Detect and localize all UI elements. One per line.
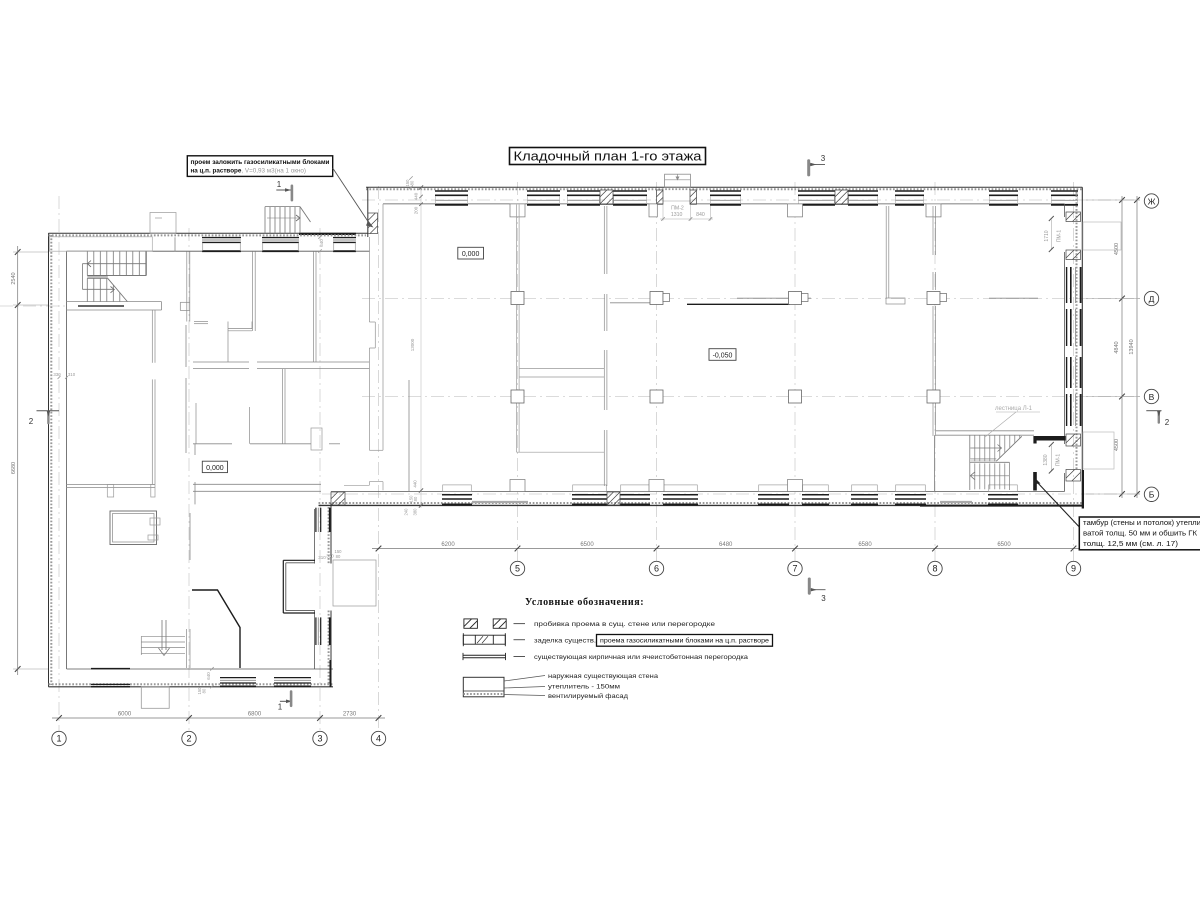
svg-text:440: 440 xyxy=(413,480,418,488)
svg-text:Ж: Ж xyxy=(1148,196,1156,206)
svg-text:2: 2 xyxy=(1165,418,1170,427)
svg-text:1: 1 xyxy=(56,734,61,744)
svg-text:проем заложить газосиликатными: проем заложить газосиликатными блоками xyxy=(191,158,330,166)
svg-text:13940: 13940 xyxy=(1129,339,1135,354)
svg-text:4500: 4500 xyxy=(1114,243,1120,255)
svg-text:1710: 1710 xyxy=(1044,230,1050,241)
svg-text:Б: Б xyxy=(1149,490,1155,500)
svg-text:4: 4 xyxy=(376,734,381,744)
svg-text:6680: 6680 xyxy=(11,462,17,474)
svg-text:330: 330 xyxy=(326,554,334,559)
svg-text:80: 80 xyxy=(413,496,418,501)
svg-text:310: 310 xyxy=(68,372,76,377)
svg-text:6480: 6480 xyxy=(719,542,733,548)
svg-text:ПМ-2: ПМ-2 xyxy=(671,206,684,212)
svg-text:3: 3 xyxy=(821,594,826,603)
svg-text:6200: 6200 xyxy=(441,542,455,548)
svg-text:вентилируемый фасад: вентилируемый фасад xyxy=(548,692,628,700)
svg-text:0,000: 0,000 xyxy=(206,465,224,472)
svg-text:6500: 6500 xyxy=(580,542,594,548)
svg-text:6800: 6800 xyxy=(248,712,262,718)
svg-text:2: 2 xyxy=(29,417,34,426)
svg-text:640: 640 xyxy=(206,672,211,680)
svg-text:80: 80 xyxy=(336,554,341,559)
svg-text:8: 8 xyxy=(932,564,937,574)
svg-text:4840: 4840 xyxy=(1114,341,1120,353)
svg-text:1380: 1380 xyxy=(1043,454,1049,465)
svg-text:380: 380 xyxy=(413,508,418,516)
svg-text:5: 5 xyxy=(515,564,520,574)
svg-text:0,000: 0,000 xyxy=(462,251,480,258)
svg-text:13000: 13000 xyxy=(410,338,415,351)
svg-text:1: 1 xyxy=(277,180,282,189)
svg-text:80: 80 xyxy=(410,180,415,185)
svg-text:утеплитель - 150мм: утеплитель - 150мм xyxy=(548,683,620,690)
svg-text:6000: 6000 xyxy=(118,712,132,718)
svg-text:заделка существ.: заделка существ. xyxy=(534,637,596,644)
svg-text:В: В xyxy=(1149,392,1155,402)
svg-text:9: 9 xyxy=(1071,564,1076,574)
svg-text:2540: 2540 xyxy=(11,272,17,284)
svg-text:Д: Д xyxy=(1149,294,1155,304)
svg-text:4500: 4500 xyxy=(1114,439,1120,451)
svg-text:тамбур (стены и потолок) утепл: тамбур (стены и потолок) утепли xyxy=(1083,519,1200,527)
svg-text:6: 6 xyxy=(654,564,659,574)
svg-text:толщ. 12,5 мм (см. л. 17): толщ. 12,5 мм (см. л. 17) xyxy=(1083,541,1178,548)
svg-text:840: 840 xyxy=(696,212,705,218)
svg-text:3: 3 xyxy=(317,734,322,744)
svg-text:2: 2 xyxy=(186,734,191,744)
svg-text:ПМ-1: ПМ-1 xyxy=(1056,454,1062,466)
svg-text:на ц.п. растворе, V=0,93 м3(на: на ц.п. растворе, V=0,93 м3(на 1 окно) xyxy=(191,168,307,175)
svg-text:Кладочный план 1-го этажа: Кладочный план 1-го этажа xyxy=(514,150,702,164)
svg-text:проема газосиликатными блоками: проема газосиликатными блоками на ц.п. р… xyxy=(600,637,769,645)
svg-text:-0,050: -0,050 xyxy=(713,352,733,359)
svg-text:440: 440 xyxy=(414,192,419,200)
svg-text:7: 7 xyxy=(792,564,797,574)
svg-text:лестница Л-1: лестница Л-1 xyxy=(995,406,1033,412)
svg-text:ПМ-1: ПМ-1 xyxy=(1057,230,1063,242)
svg-text:80: 80 xyxy=(202,688,207,693)
svg-text:6500: 6500 xyxy=(997,542,1011,548)
svg-text:Условные обозначения:: Условные обозначения: xyxy=(525,597,644,608)
svg-text:1: 1 xyxy=(278,703,283,712)
svg-text:240: 240 xyxy=(404,508,409,516)
svg-text:310: 310 xyxy=(318,555,326,560)
svg-text:2730: 2730 xyxy=(343,712,357,718)
svg-text:пробивка проема в сущ. стене: пробивка проема в сущ. стене или перегор… xyxy=(534,620,715,628)
svg-text:6580: 6580 xyxy=(858,542,872,548)
svg-text:200: 200 xyxy=(414,206,419,214)
svg-text:ватой толщ. 50 мм и обшить ГК: ватой толщ. 50 мм и обшить ГК xyxy=(1083,529,1198,537)
svg-text:существующая кирпичная или яче: существующая кирпичная или ячеистобетонн… xyxy=(534,653,748,661)
svg-text:3: 3 xyxy=(821,154,826,163)
svg-text:наружная существующая стена: наружная существующая стена xyxy=(548,673,658,680)
svg-text:1310: 1310 xyxy=(671,212,683,218)
svg-text:640: 640 xyxy=(319,239,324,247)
